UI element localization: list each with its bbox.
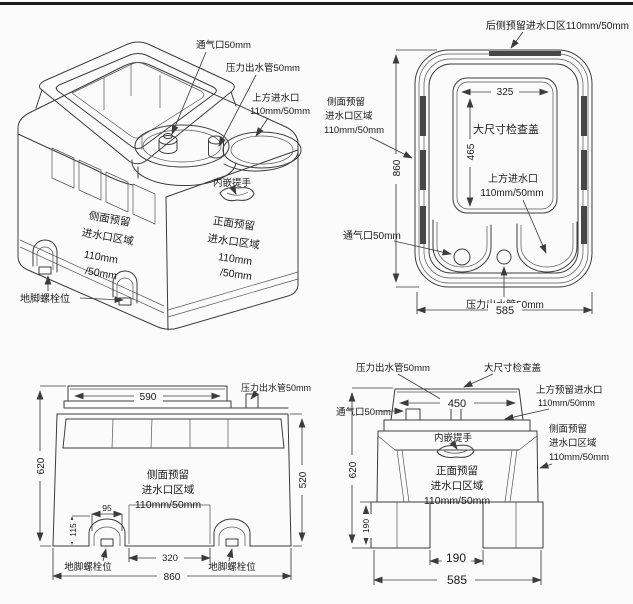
top-width-dim: 585: [496, 305, 514, 317]
top-border-bar: [0, 2, 633, 5]
persp-side-area-3: 110mm: [83, 249, 119, 267]
front-vent-label: 通气口50mm: [336, 406, 391, 418]
persp-vent-label: 通气口50mm: [196, 39, 251, 51]
front-side-area-1: 侧面预留: [549, 423, 587, 435]
side-footw-extlines: [92, 514, 122, 531]
top-side-area-3: 110mm/50mm: [324, 125, 384, 136]
side-view: 侧面预留 进水口区域 110mm/50mm 压力出水管50mm 590 620 …: [34, 382, 311, 583]
front-side-area-3: 110mm/50mm: [549, 452, 609, 463]
persp-side-area-4: /50mm: [84, 265, 118, 282]
side-bodyh-dim: 520: [298, 471, 309, 488]
top-inlet-label-2: 110mm/50mm: [480, 188, 543, 199]
front-top-inlet-leader: [505, 409, 549, 419]
top-cover-height-dim: 465: [466, 143, 477, 160]
persp-top-inlet-leader: [256, 118, 268, 136]
front-area-3: 110mm/50mm: [424, 495, 491, 507]
top-side-area-2: 进水口区域: [325, 110, 373, 122]
top-view: 325 465 大尺寸检查盖 上方进水口 110mm/50mm 后侧预留进水口区…: [324, 19, 629, 317]
front-area-1: 正面预留: [436, 464, 478, 477]
persp-front-area-3: 110mm: [217, 251, 253, 268]
persp-side-area-1: 侧面预留: [88, 209, 132, 229]
side-anchor-right-leader: [229, 549, 232, 561]
side-view-outline: [53, 386, 291, 546]
side-anchor-right-label: 地脚螺栓位: [208, 561, 256, 573]
front-top-inlet-label-2: 110mm/50mm: [538, 398, 595, 408]
side-footh-dim: 115: [68, 523, 78, 537]
side-pressure-pipe-label: 压力出水管50mm: [241, 382, 311, 393]
front-handle-label: 内嵌提手: [434, 432, 473, 444]
front-cover-leader: [464, 374, 493, 387]
side-area-1: 侧面预留: [147, 468, 189, 481]
persp-anchor-bolt-label: 地脚螺栓位: [20, 292, 70, 305]
persp-vent-leader: [172, 52, 206, 134]
side-span-dim: 320: [162, 553, 178, 564]
top-cover-width-dim: 325: [497, 87, 514, 98]
front-footh-dim: 190: [361, 519, 371, 533]
persp-anchor-arrow-right: [80, 298, 123, 300]
side-area-3: 110mm/50mm: [135, 499, 202, 511]
front-overall-dim: 585: [447, 573, 467, 587]
side-lid-dim: 590: [140, 392, 157, 403]
front-lid-dim: 450: [448, 398, 466, 410]
side-height-dim: 620: [36, 457, 47, 474]
side-footw-dim: 95: [102, 503, 112, 513]
front-top-inlet-label-1: 上方预留进水口: [536, 384, 603, 396]
persp-handle-label: 内嵌提手: [213, 177, 252, 189]
top-inlet-leader: [523, 200, 546, 253]
top-length-dim: 860: [392, 159, 403, 176]
front-span-dim: 190: [446, 551, 466, 565]
top-inlet-label-1: 上方进水口: [488, 172, 538, 185]
persp-front-area-4: /50mm: [219, 267, 253, 283]
top-rear-inlet-label: 后侧预留进水口区110mm/50mm: [486, 19, 629, 32]
side-anchor-left-leader: [103, 549, 106, 561]
top-cover-label: 大尺寸检查盖: [473, 122, 539, 136]
persp-top-inlet-label-1: 上方进水口: [252, 92, 300, 104]
dimension-diagram: 通气口50mm 压力出水管50mm 上方进水口 110mm/50mm 内嵌提手 …: [0, 0, 633, 604]
persp-front-area-1: 正面预留: [212, 214, 255, 233]
front-height-dim: 620: [348, 461, 359, 478]
front-cover-label: 大尺寸检查盖: [484, 362, 542, 374]
tank-3d-outline: [18, 42, 301, 330]
persp-pressure-pipe-label: 压力出水管50mm: [226, 62, 300, 74]
side-area-2: 进水口区域: [142, 483, 195, 496]
persp-side-area-label: 侧面预留 进水口区域 110mm /50mm: [74, 208, 138, 284]
perspective-view: 通气口50mm 压力出水管50mm 上方进水口 110mm/50mm 内嵌提手 …: [18, 39, 310, 330]
front-pressure-pipe-label: 压力出水管50mm: [356, 362, 430, 374]
front-side-area-leader: [540, 464, 552, 468]
top-side-area-1: 侧面预留: [327, 96, 365, 108]
side-anchor-left-label: 地脚螺栓位: [64, 561, 112, 573]
front-view: 内嵌提手 正面预留 进水口区域 110mm/50mm 压力出水管50mm 大尺寸…: [336, 362, 609, 587]
persp-front-area-2: 进水口区域: [207, 231, 261, 251]
front-area-2: 进水口区域: [431, 479, 484, 492]
top-vent-label: 通气口50mm: [343, 229, 401, 242]
front-side-area-2: 进水口区域: [549, 437, 597, 449]
persp-front-area-label: 正面预留 进水口区域 110mm /50mm: [202, 214, 263, 284]
top-rear-inlet-leader: [511, 32, 523, 48]
persp-top-inlet-label-2: 110mm/50mm: [250, 106, 310, 117]
side-overall-dim: 860: [164, 572, 181, 583]
persp-side-area-2: 进水口区域: [81, 226, 135, 248]
diagram-svg: 通气口50mm 压力出水管50mm 上方进水口 110mm/50mm 内嵌提手 …: [0, 0, 633, 604]
